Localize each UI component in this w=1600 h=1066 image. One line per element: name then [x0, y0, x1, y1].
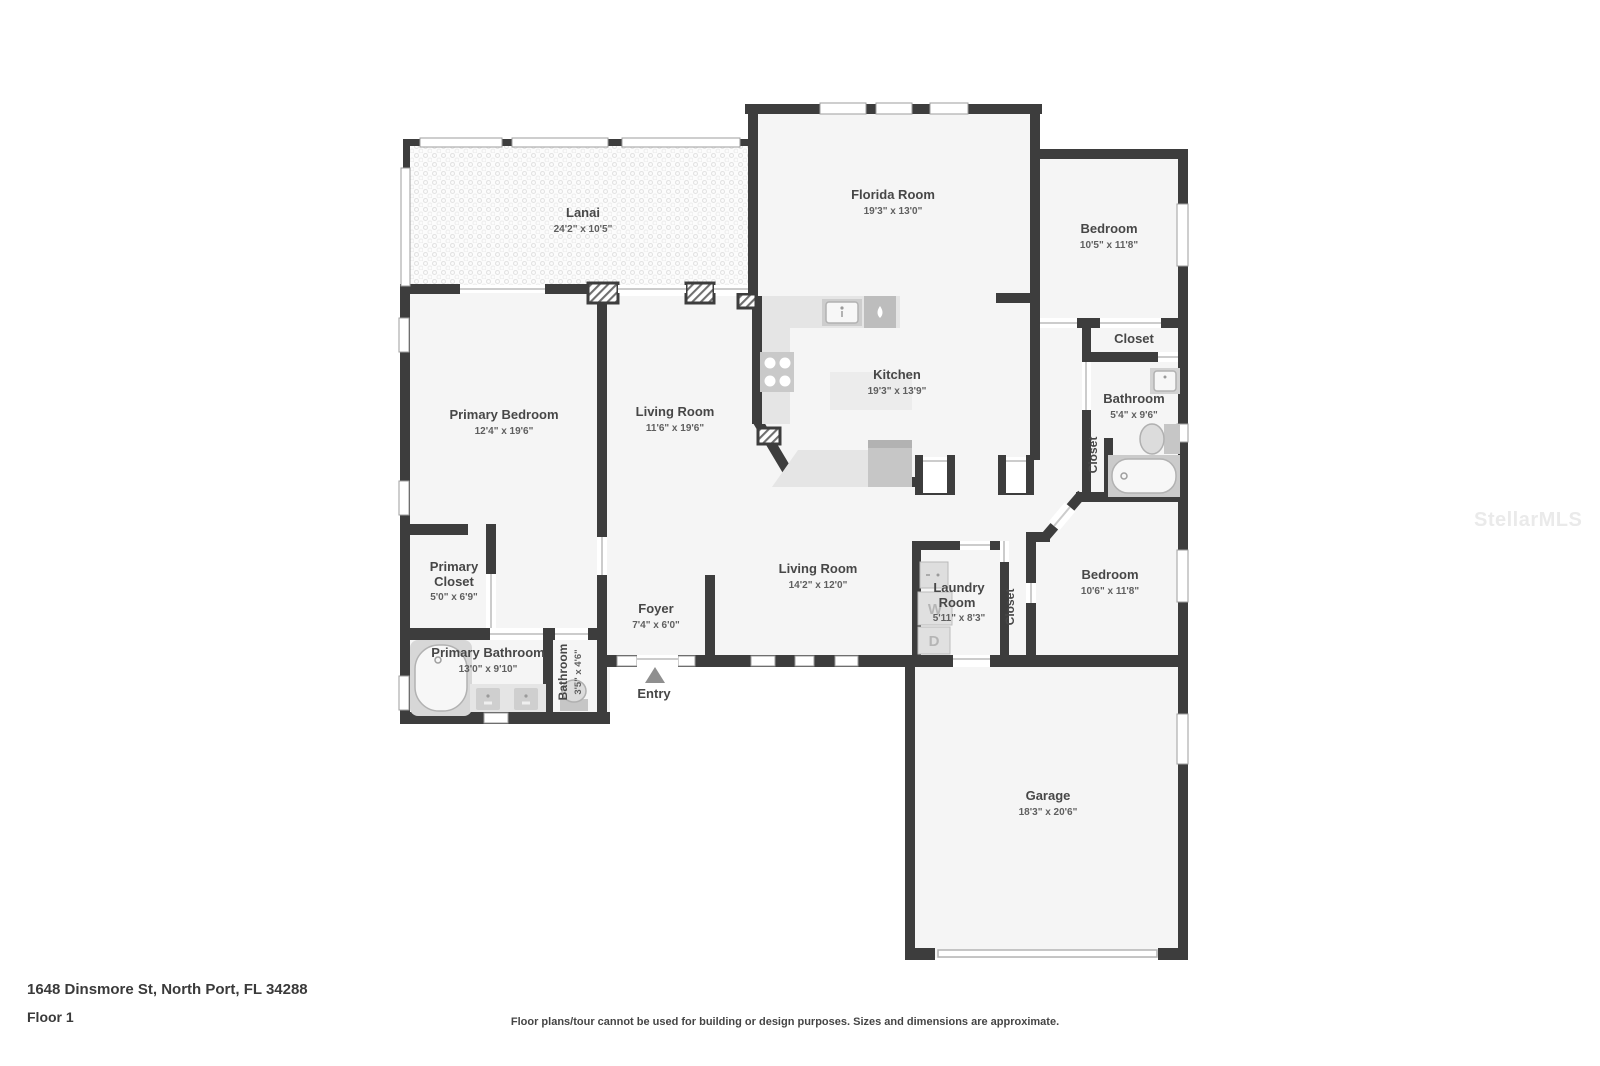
room-label-closet-bathroom: Closet: [1086, 437, 1100, 474]
room-label-garage: Garage: [1026, 788, 1071, 803]
room-label-bathroom-right: Bathroom: [1103, 391, 1164, 406]
room-dims-bedroom-top: 10'5" x 11'8": [1080, 240, 1138, 251]
room-dims-florida-room: 19'3" x 13'0": [864, 206, 923, 217]
floorplan-page: W D: [0, 0, 1600, 1066]
room-label-bedroom-top: Bedroom: [1080, 221, 1137, 236]
room-label-lanai: Lanai: [566, 205, 600, 220]
room-label-kitchen: Kitchen: [873, 367, 921, 382]
room-dims-primary-closet: 5'0" x 6'9": [430, 592, 478, 603]
room-label-living-room-upper: Living Room: [636, 404, 715, 419]
room-dims-primary-bathroom: 13'0" x 9'10": [459, 664, 518, 675]
room-label-entry: Entry: [637, 686, 671, 701]
room-dims-laundry: 5'11" x 8'3": [933, 613, 986, 624]
room-dims-garage: 18'3" x 20'6": [1019, 807, 1078, 818]
dryer-icon: D: [918, 627, 950, 654]
dryer-label: D: [929, 633, 940, 650]
watermark: StellarMLS: [1474, 509, 1582, 532]
room-label-primary-closet-2: Closet: [434, 574, 474, 589]
room-label-bathroom-small: Bathroom: [556, 644, 570, 701]
floorplan-drawing: W D: [0, 0, 1600, 1066]
room-label-closet-top: Closet: [1114, 331, 1154, 346]
room-label-living-room-lower: Living Room: [779, 561, 858, 576]
vanity-sink-icon: [514, 688, 538, 710]
vanity-sink-icon: [476, 688, 500, 710]
room-dims-foyer: 7'4" x 6'0": [632, 620, 680, 631]
door-threshold-icon: [758, 428, 780, 444]
refrigerator-icon: [868, 440, 912, 487]
entry-arrow-icon: [645, 667, 665, 683]
room-label-laundry-1: Laundry: [933, 580, 985, 595]
room-label-primary-closet-1: Primary: [430, 559, 479, 574]
floor-fills: [402, 106, 1186, 958]
dishwasher-icon: [864, 296, 896, 328]
door-threshold-icon: [738, 294, 756, 308]
room-dims-primary-bedroom: 12'4" x 19'6": [475, 426, 534, 437]
room-label-florida-room: Florida Room: [851, 187, 935, 202]
garage-door-icon: [938, 950, 1157, 957]
room-dims-bathroom-small: 3'5" x 4'6": [573, 649, 584, 694]
room-dims-lanai: 24'2" x 10'5": [554, 224, 613, 235]
disclaimer-text: Floor plans/tour cannot be used for buil…: [0, 1016, 1570, 1028]
room-dims-kitchen: 19'3" x 13'9": [868, 386, 927, 397]
room-label-primary-bedroom: Primary Bedroom: [449, 407, 558, 422]
kitchen-sink-icon: [822, 299, 862, 326]
sliding-door-threshold-icon: [686, 283, 714, 303]
room-label-bedroom-right: Bedroom: [1081, 567, 1138, 582]
room-label-foyer: Foyer: [638, 601, 673, 616]
room-label-laundry-2: Room: [939, 595, 976, 610]
room-dims-bathroom-right: 5'4" x 9'6": [1110, 410, 1158, 421]
address-text: 1648 Dinsmore St, North Port, FL 34288: [27, 981, 308, 998]
room-label-primary-bathroom: Primary Bathroom: [431, 645, 544, 660]
room-dims-living-room-upper: 11'6" x 19'6": [646, 423, 704, 434]
sliding-door-threshold-icon: [588, 283, 618, 303]
bathtub-icon: [1108, 455, 1180, 497]
toilet-icon: [1140, 424, 1180, 454]
room-label-closet-hall: Closet: [1003, 589, 1017, 626]
room-dims-bedroom-right: 10'6" x 11'8": [1081, 586, 1139, 597]
stove-icon: [760, 352, 794, 392]
room-dims-living-room-lower: 14'2" x 12'0": [789, 580, 848, 591]
